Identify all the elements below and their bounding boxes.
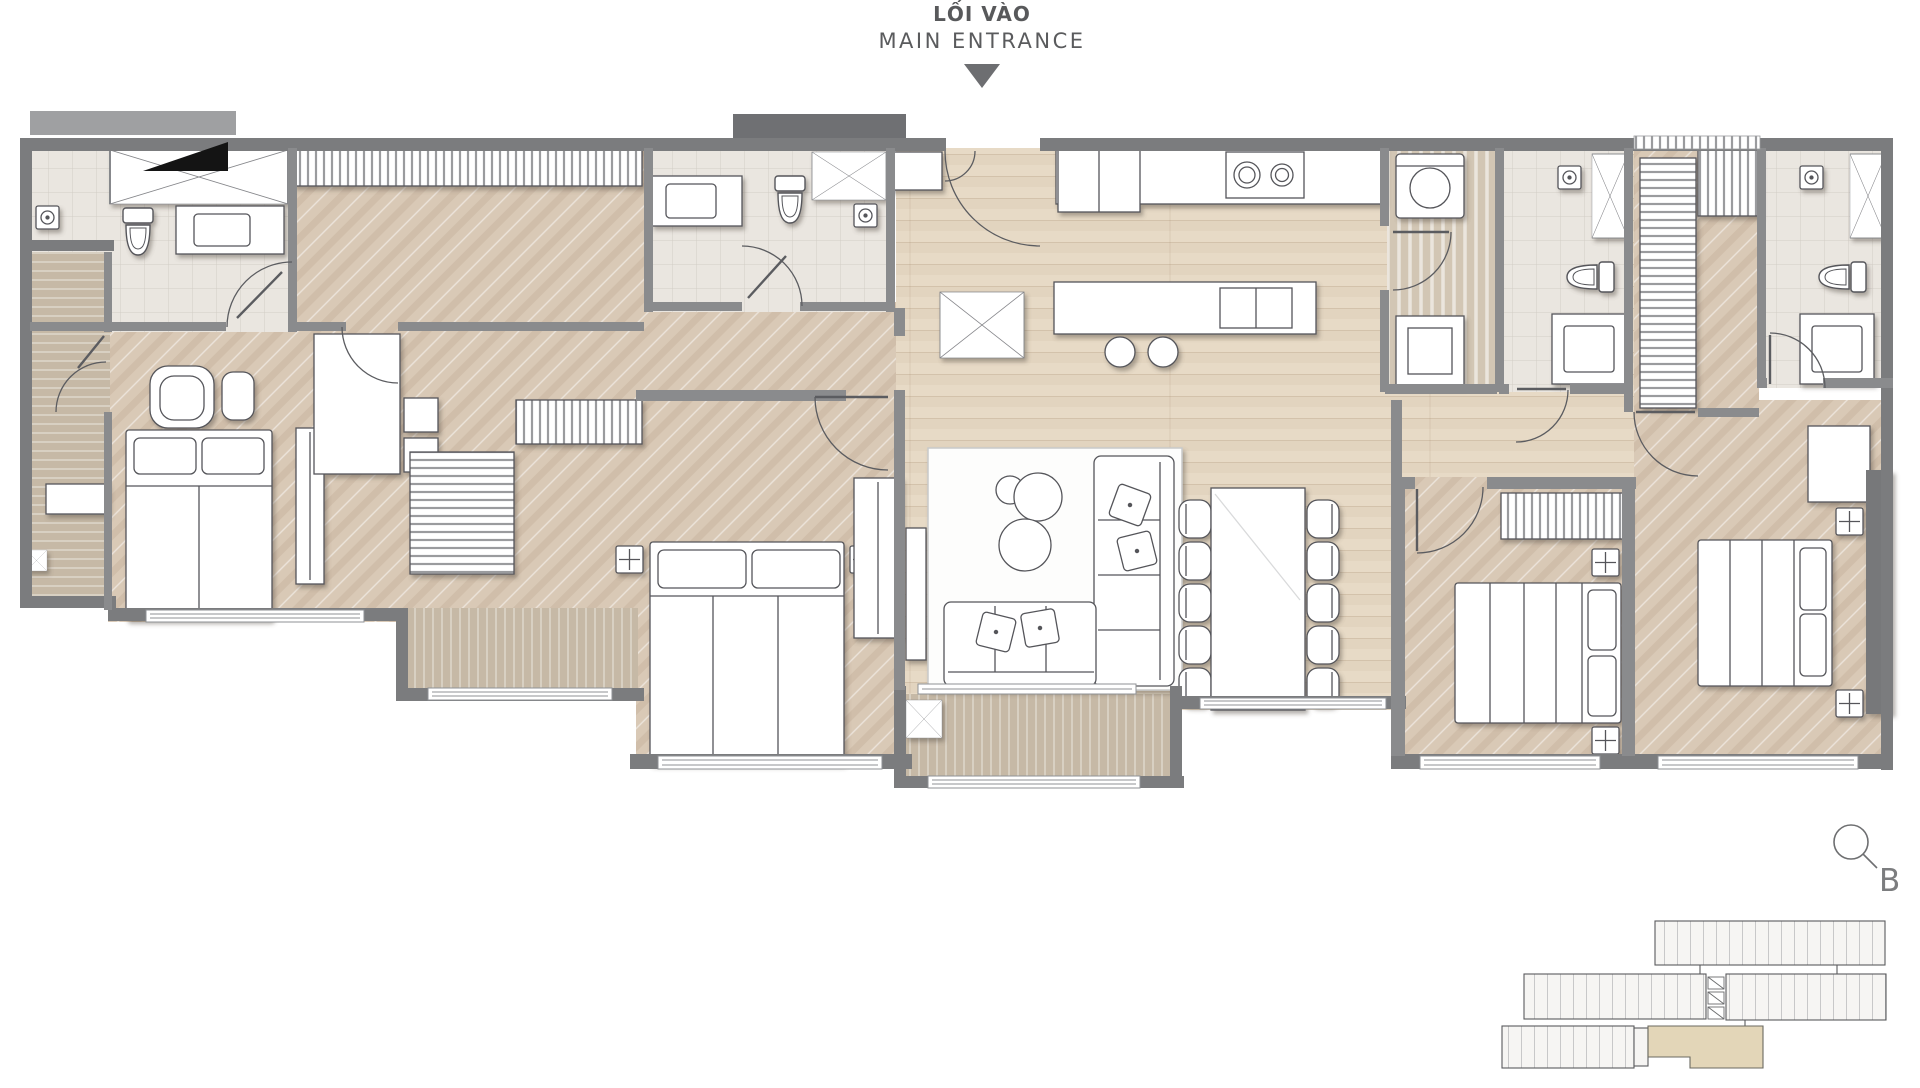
- living-room-furniture: [906, 448, 1182, 690]
- window: [1200, 698, 1386, 709]
- coffee-table: [999, 519, 1051, 571]
- shower-icon: [36, 206, 59, 229]
- drawer-chest: [410, 452, 514, 574]
- dining-table: [1211, 488, 1305, 710]
- key-plan: [1502, 921, 1886, 1068]
- laundry-cabinet: [1396, 316, 1464, 386]
- window: [146, 610, 364, 622]
- nightstand: [1592, 549, 1619, 576]
- entry-closet-hatch-icon: [940, 292, 1024, 358]
- key-plan-wing-middle-left: [1524, 974, 1706, 1019]
- shower-icon: [1558, 166, 1581, 189]
- balcony-sill: [918, 684, 1136, 694]
- media-console: [906, 528, 926, 660]
- wardrobe-hanging-rail: [1501, 493, 1629, 539]
- vanity: [1552, 314, 1626, 384]
- vanity: [176, 206, 284, 254]
- wardrobe-shelf: [1698, 150, 1760, 216]
- key-plan-highlighted-unit: [1648, 1026, 1763, 1068]
- balcony-hatch-icon: [906, 700, 942, 738]
- throw-pillow: [975, 611, 1016, 652]
- window: [428, 688, 612, 700]
- bed-2: [650, 542, 844, 764]
- bed-master: [1698, 540, 1832, 686]
- window: [1658, 756, 1858, 769]
- closet-hatch-icon: [1592, 154, 1628, 238]
- block-marker-label: B: [1879, 863, 1900, 899]
- window: [928, 776, 1140, 788]
- bar-stool: [1148, 337, 1178, 367]
- entry-cabinet: [888, 152, 942, 190]
- walkin-desk: [314, 334, 400, 474]
- balcony-bench: [46, 484, 108, 514]
- vanity: [1800, 314, 1874, 384]
- shoe-rack: [516, 400, 642, 444]
- balcony-2-floor: [904, 694, 1172, 780]
- shelf-box: [404, 398, 438, 432]
- closet-hatch-icon: [1850, 154, 1886, 238]
- block-marker: B: [1834, 825, 1900, 899]
- nightstand: [1592, 727, 1619, 754]
- key-plan-wing-bottom-left: [1502, 1026, 1634, 1068]
- throw-pillow: [1020, 608, 1059, 647]
- dresser: [1808, 426, 1870, 502]
- bed-1: [126, 430, 272, 620]
- window: [658, 756, 882, 769]
- loggia-floor: [406, 608, 638, 692]
- closet-hatch-icon: [812, 152, 886, 200]
- key-plan-wing-middle-right: [1726, 974, 1886, 1020]
- window: [1420, 756, 1600, 769]
- shower-icon: [1800, 166, 1823, 189]
- floor-plan-page: LỐI VÀO MAIN ENTRANCE: [0, 0, 1920, 1088]
- ottoman: [222, 372, 254, 420]
- throw-pillow: [1116, 530, 1157, 571]
- coffee-table: [1014, 473, 1062, 521]
- key-plan-connector: [1634, 1028, 1648, 1066]
- nightstand: [616, 546, 643, 573]
- bar-stool: [1105, 337, 1135, 367]
- nightstand: [1836, 690, 1863, 717]
- wardrobe-hanging-rail: [294, 146, 642, 186]
- dining-set: [1179, 488, 1339, 710]
- exterior-ledge: [30, 111, 236, 135]
- wardrobe-hanging-rail: [1640, 158, 1696, 408]
- nightstand: [1836, 508, 1863, 535]
- balcony-1-floor: [32, 252, 110, 600]
- block-marker-circle-icon: [1834, 825, 1868, 859]
- key-plan-wing-top: [1655, 921, 1885, 965]
- kitchen-island: [1054, 282, 1316, 334]
- vent-strip: [1634, 136, 1760, 149]
- bed-3: [1455, 583, 1621, 723]
- floor-plan-canvas: B: [0, 0, 1920, 1088]
- shower-icon: [854, 204, 877, 227]
